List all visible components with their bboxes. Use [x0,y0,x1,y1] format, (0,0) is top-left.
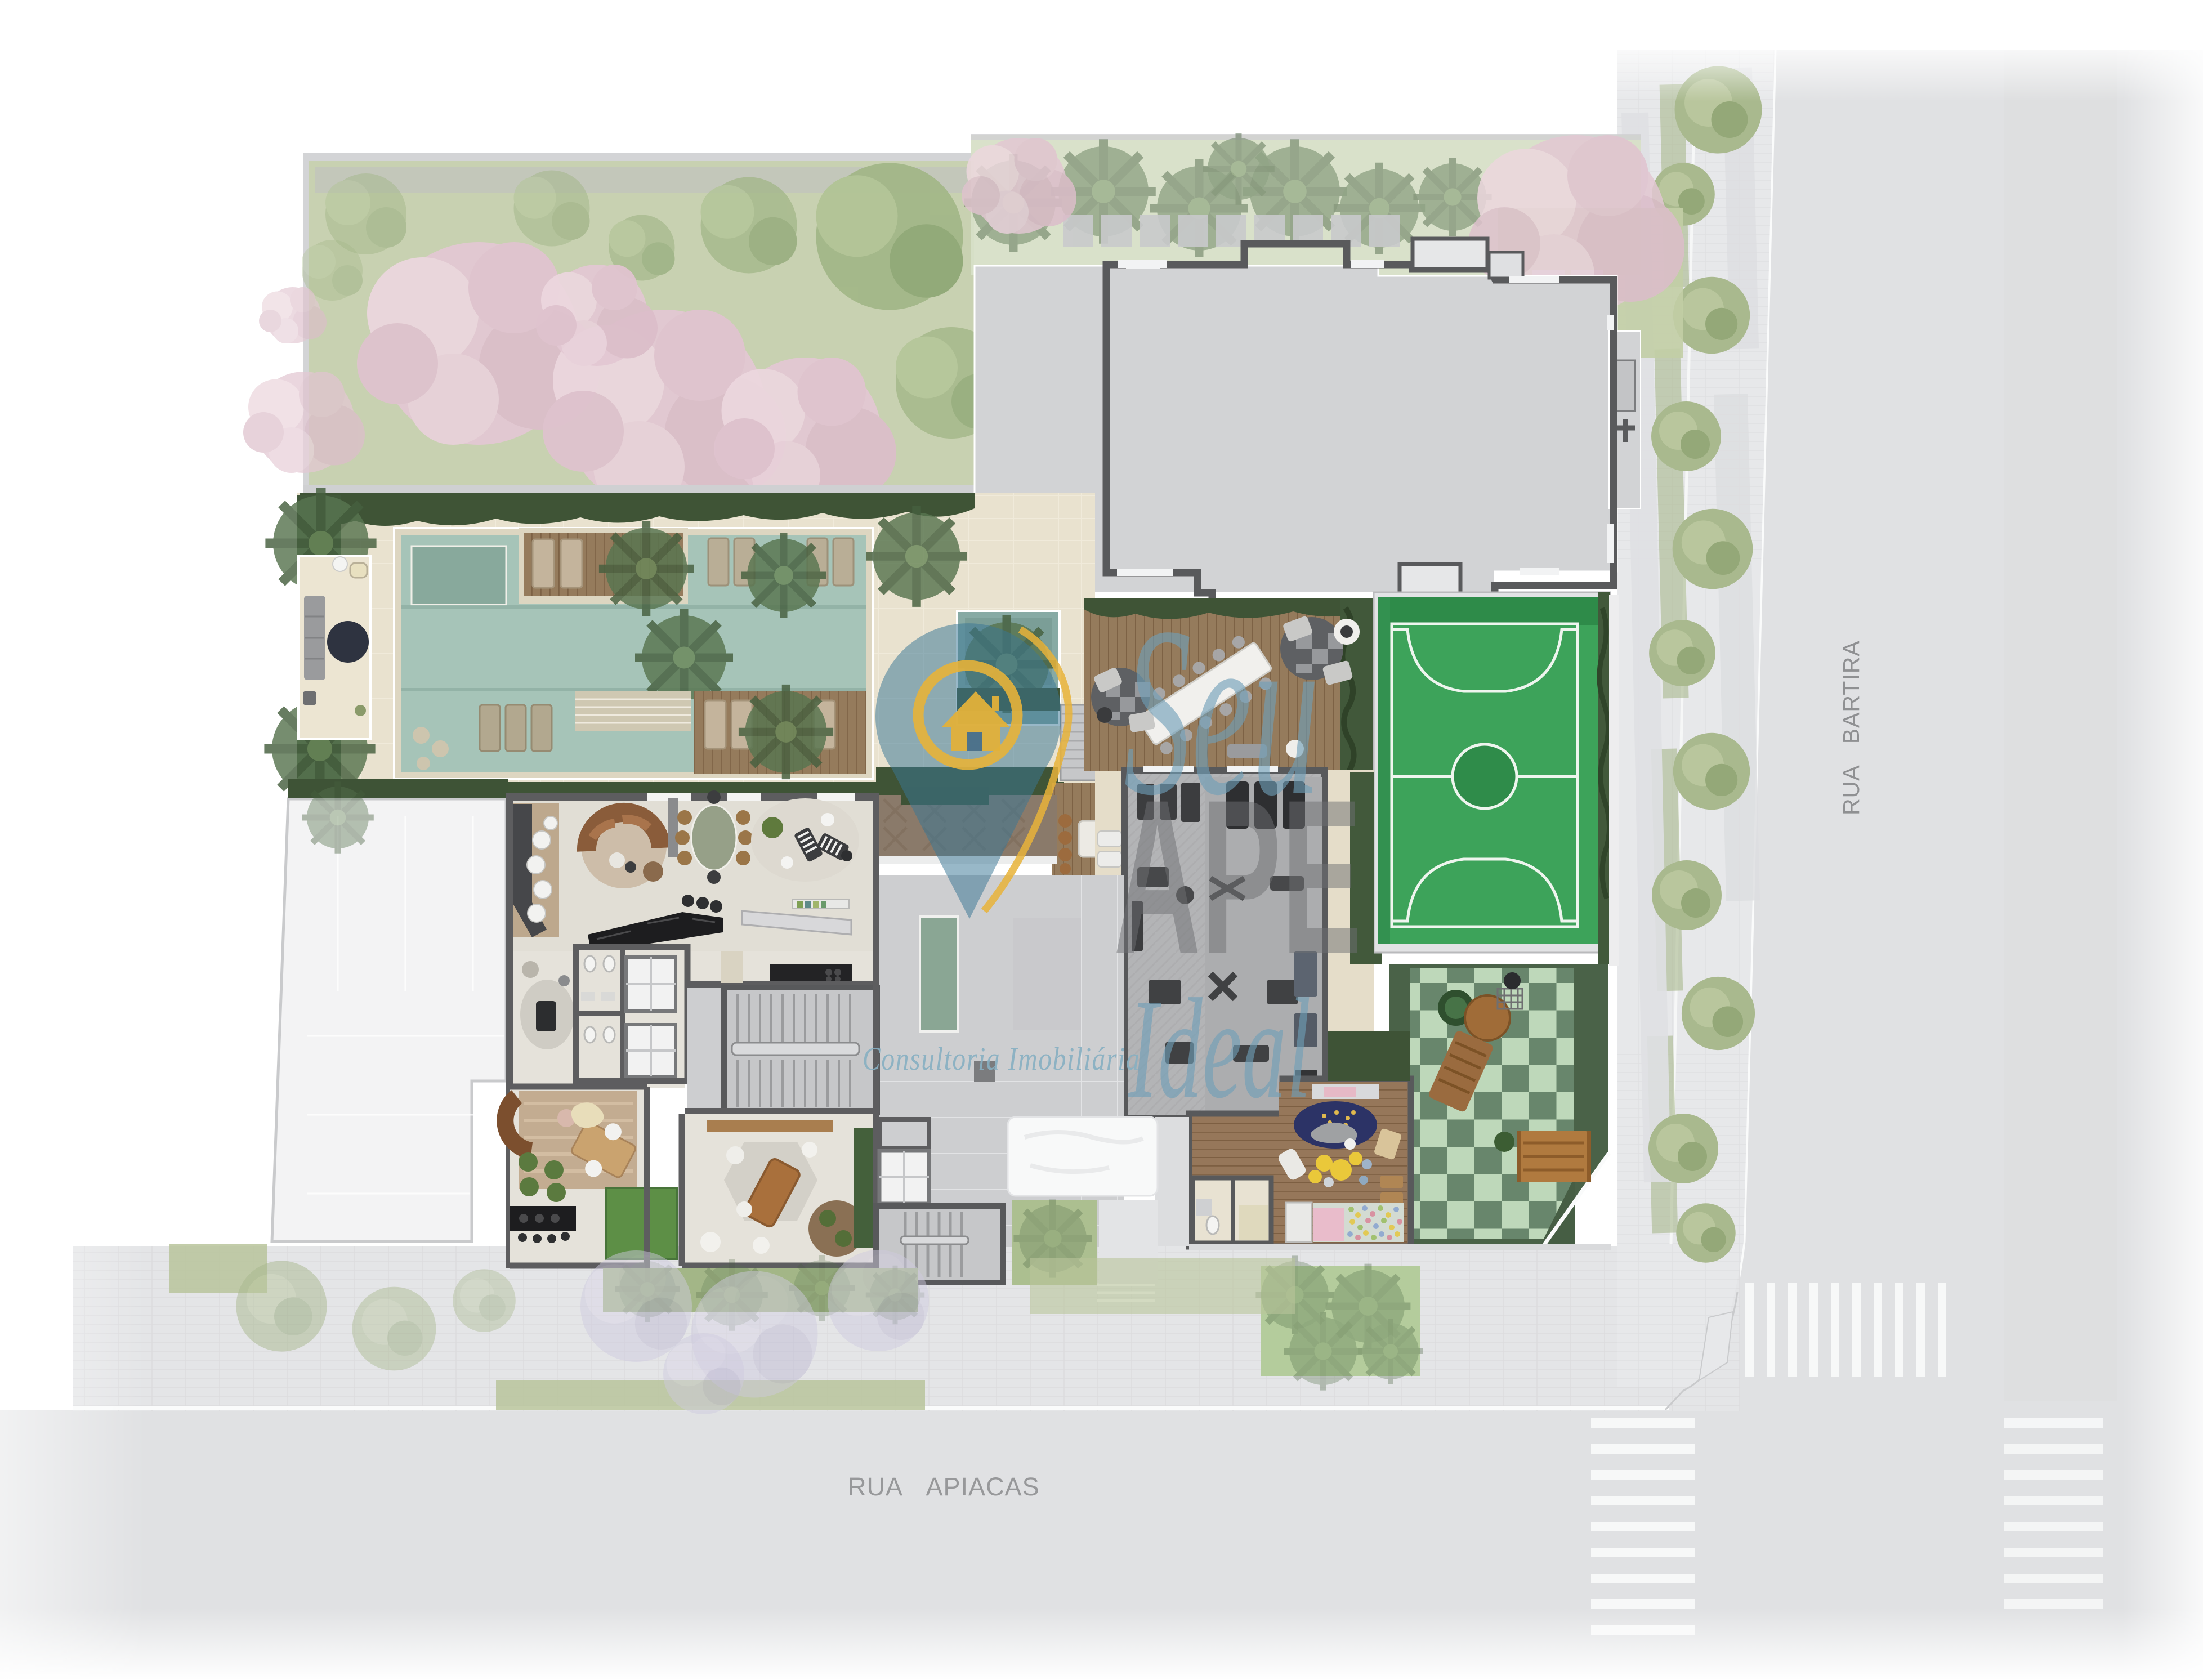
svg-text:Consultoria Imobiliária: Consultoria Imobiliária [863,1042,1140,1077]
svg-text:Ideal: Ideal [1128,969,1311,1128]
svg-text:APE: APE [1114,754,1362,999]
svg-text:RUA APIACAS: RUA APIACAS [848,1472,1040,1501]
svg-text:RUA BARTIRA: RUA BARTIRA [1838,640,1864,815]
